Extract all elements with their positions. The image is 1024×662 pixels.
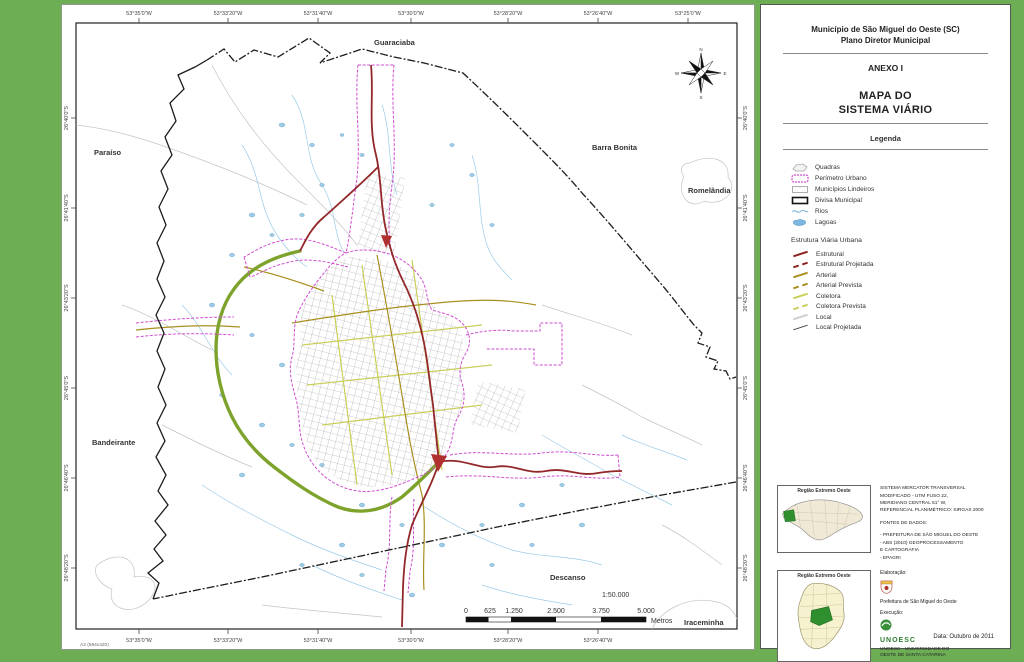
svg-text:53°33'20"W: 53°33'20"W bbox=[214, 11, 244, 17]
svg-text:3.750: 3.750 bbox=[592, 608, 610, 615]
panel-title: Município de São Miguel do Oeste (SC) Pl… bbox=[777, 25, 994, 47]
label-romelandia: Romelândia bbox=[688, 186, 731, 195]
road-item-coletora: Coletora bbox=[791, 291, 994, 302]
road-item-estrutural-projetada: Estrutural Projetada bbox=[791, 260, 994, 271]
divider bbox=[783, 123, 988, 124]
title-panel: Município de São Miguel do Oeste (SC) Pl… bbox=[760, 4, 1011, 649]
state-inset-title: Região Extremo Oeste bbox=[780, 488, 868, 494]
inset-row-state: Região Extremo Oeste SISTEMA MERCATOR TR… bbox=[777, 485, 994, 562]
region-inset-box: Região Extremo Oeste bbox=[777, 570, 871, 662]
anexo-title: ANEXO I bbox=[777, 63, 994, 73]
left-coordinates: 26°40'0"S 26°41'40"S 26°43'20"S 26°45'0"… bbox=[64, 106, 70, 582]
svg-text:26°40'0"S: 26°40'0"S bbox=[743, 106, 749, 130]
svg-text:1.250: 1.250 bbox=[505, 608, 523, 615]
divider bbox=[783, 149, 988, 150]
arterial-prevista-swatch-icon bbox=[793, 283, 808, 290]
right-coordinates: 26°40'0"S 26°41'40"S 26°43'20"S 26°45'0"… bbox=[743, 106, 749, 582]
svg-text:26°40'0"S: 26°40'0"S bbox=[64, 106, 70, 130]
road-item-estrutural: Estrutural bbox=[791, 249, 994, 260]
coletora-swatch-icon bbox=[793, 293, 808, 300]
unoesc-name: UNOESC - UNIVERSIDADE DO OESTE DE SANTA … bbox=[880, 647, 957, 660]
road-legend-header: Estrutura Viária Urbana bbox=[791, 237, 994, 244]
road-item-arterial-prevista: Arterial Prevista bbox=[791, 281, 994, 292]
coletora-prevista-swatch-icon bbox=[793, 304, 808, 311]
date-label: Data: Outubro de 2011 bbox=[933, 634, 994, 640]
label-paraiso: Paraíso bbox=[94, 148, 122, 157]
svg-text:53°26'40"W: 53°26'40"W bbox=[584, 11, 614, 17]
svg-text:26°48'20"S: 26°48'20"S bbox=[64, 554, 70, 582]
plan-title: Plano Diretor Municipal bbox=[777, 36, 994, 47]
svg-text:S: S bbox=[699, 95, 702, 100]
municipal-crest-icon bbox=[880, 579, 893, 594]
lindeiros-swatch-icon bbox=[791, 185, 809, 194]
svg-text:53°28'20"W: 53°28'20"W bbox=[494, 638, 524, 644]
estrutural-swatch-icon bbox=[793, 251, 808, 258]
region-highlight bbox=[783, 510, 795, 522]
road-item-arterial: Arterial bbox=[791, 270, 994, 281]
quadras-swatch-icon bbox=[791, 163, 809, 172]
svg-text:53°31'40"W: 53°31'40"W bbox=[304, 638, 334, 644]
lagoas-swatch-icon bbox=[791, 218, 809, 227]
svg-text:53°31'40"W: 53°31'40"W bbox=[304, 11, 334, 17]
svg-text:26°41'40"S: 26°41'40"S bbox=[743, 194, 749, 222]
legend-item-lagoas: Lagoas bbox=[791, 217, 994, 228]
legend: Quadras Perímetro Urbano Municípios Lind… bbox=[791, 162, 994, 333]
svg-text:26°43'20"S: 26°43'20"S bbox=[743, 284, 749, 312]
road-item-coletora-prevista: Coletora Prevista bbox=[791, 302, 994, 313]
label-descanso: Descanso bbox=[550, 573, 586, 582]
unoesc-logo-icon bbox=[880, 619, 892, 631]
svg-text:53°35'0"W: 53°35'0"W bbox=[126, 11, 152, 17]
top-coordinates: 53°35'0"W 53°33'20"W 53°31'40"W 53°30'0"… bbox=[126, 11, 701, 17]
svg-text:26°41'40"S: 26°41'40"S bbox=[64, 194, 70, 222]
svg-text:26°46'40"S: 26°46'40"S bbox=[64, 464, 70, 492]
svg-text:0: 0 bbox=[464, 608, 468, 615]
scale-ratio: 1:50.000 bbox=[602, 592, 629, 599]
rios-swatch-icon bbox=[791, 207, 809, 216]
legend-item-divisa: Divisa Municipal bbox=[791, 195, 994, 206]
svg-text:53°25'0"W: 53°25'0"W bbox=[675, 11, 701, 17]
svg-text:53°33'20"W: 53°33'20"W bbox=[214, 638, 244, 644]
state-inset-box: Região Extremo Oeste bbox=[777, 485, 871, 553]
svg-text:N: N bbox=[699, 47, 702, 52]
local-swatch-icon bbox=[793, 314, 808, 321]
credits-block: Elaboração: Prefeitura de São Miguel do … bbox=[880, 570, 957, 660]
execucao-label: Execução: bbox=[880, 610, 957, 617]
divisa-swatch-icon bbox=[791, 196, 809, 205]
label-iraceminha: Iraceminha bbox=[684, 618, 724, 627]
map-title: MAPA DO SISTEMA VIÁRIO bbox=[777, 89, 994, 118]
perimetro-swatch-icon bbox=[791, 174, 809, 183]
svg-text:5.000: 5.000 bbox=[637, 608, 655, 615]
svg-text:26°43'20"S: 26°43'20"S bbox=[64, 284, 70, 312]
sheet-format-label: A2 (594x420) bbox=[80, 642, 109, 648]
arterial-swatch-icon bbox=[793, 272, 808, 279]
svg-text:26°45'0"S: 26°45'0"S bbox=[743, 376, 749, 400]
svg-text:53°26'40"W: 53°26'40"W bbox=[584, 638, 614, 644]
estrutural-projetada-swatch-icon bbox=[793, 262, 808, 269]
legend-item-perimetro: Perímetro Urbano bbox=[791, 173, 994, 184]
bottom-coordinates: 53°35'0"W 53°33'20"W 53°31'40"W 53°30'0"… bbox=[126, 638, 613, 644]
svg-text:26°46'40"S: 26°46'40"S bbox=[743, 464, 749, 492]
prefeitura-name: Prefeitura de São Miguel do Oeste bbox=[880, 599, 957, 606]
scale-unit: Metros bbox=[651, 618, 673, 625]
region-inset-title: Região Extremo Oeste bbox=[780, 573, 868, 579]
map-svg: 53°35'0"W 53°33'20"W 53°31'40"W 53°30'0"… bbox=[62, 5, 754, 649]
legend-title: Legenda bbox=[777, 134, 994, 143]
svg-text:53°30'0"W: 53°30'0"W bbox=[398, 638, 424, 644]
svg-text:26°48'20"S: 26°48'20"S bbox=[743, 554, 749, 582]
road-item-local: Local bbox=[791, 312, 994, 323]
legend-item-quadras: Quadras bbox=[791, 162, 994, 173]
road-item-local-projetada: Local Projetada bbox=[791, 323, 994, 334]
svg-text:53°30'0"W: 53°30'0"W bbox=[398, 11, 424, 17]
legend-item-lindeiros: Municípios Lindeiros bbox=[791, 184, 994, 195]
label-bandeirante: Bandeirante bbox=[92, 438, 135, 447]
svg-text:53°35'0"W: 53°35'0"W bbox=[126, 638, 152, 644]
inset-row-region: Região Extremo Oeste Elaboração: Prefeit… bbox=[777, 570, 994, 662]
divider bbox=[783, 53, 988, 54]
fontes-title: FONTES DE DADOS: bbox=[880, 520, 984, 527]
legend-item-rios: Rios bbox=[791, 206, 994, 217]
santa-catarina-map bbox=[780, 495, 866, 545]
label-guaraciaba: Guaraciaba bbox=[374, 38, 416, 47]
svg-text:625: 625 bbox=[484, 608, 496, 615]
region-map bbox=[780, 580, 866, 654]
svg-text:53°28'20"W: 53°28'20"W bbox=[494, 11, 524, 17]
projection-info: SISTEMA MERCATOR TRANSVERSAL MODIFICADO … bbox=[880, 485, 984, 562]
label-barra-bonita: Barra Bonita bbox=[592, 143, 638, 152]
page-background: { "colors": { "background": "#6dae55", "… bbox=[0, 0, 1024, 654]
svg-text:2.500: 2.500 bbox=[547, 608, 565, 615]
svg-text:26°45'0"S: 26°45'0"S bbox=[64, 376, 70, 400]
municipality-title: Município de São Miguel do Oeste (SC) bbox=[777, 25, 994, 36]
svg-text:E: E bbox=[723, 71, 726, 76]
map-sheet: 53°35'0"W 53°33'20"W 53°31'40"W 53°30'0"… bbox=[61, 4, 755, 650]
local-projetada-swatch-icon bbox=[793, 325, 808, 331]
elaboracao-label: Elaboração: bbox=[880, 570, 957, 577]
